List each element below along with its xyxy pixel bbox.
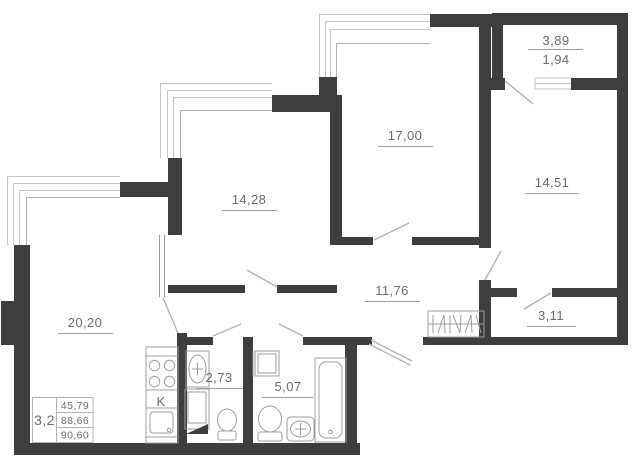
door-balcony: [505, 81, 533, 104]
toilet-icon: [259, 406, 282, 432]
bath-273-area: 2,73: [206, 370, 233, 385]
wall: [277, 285, 337, 293]
wall: [345, 337, 357, 443]
wall: [319, 77, 337, 97]
balcony-area-upper: 3,89: [543, 33, 570, 48]
room-311-area: 3,11: [538, 308, 564, 323]
entry-door: [371, 340, 412, 361]
door-room-2020: [163, 298, 178, 333]
stove-burner-icon: [149, 376, 159, 386]
toilet-tank: [258, 432, 282, 441]
drain-icon: [167, 428, 171, 432]
wall: [479, 280, 491, 345]
washing-machine-drum: [258, 354, 276, 373]
window-icon: [161, 84, 273, 159]
bath-507-area: 5,07: [275, 379, 302, 394]
stove-burner-icon: [149, 360, 159, 370]
floor-plan-canvas: 3,89 1,94 17,00 14,51 14,28 20,20 11,76 …: [0, 0, 640, 466]
wall: [479, 25, 491, 248]
toilet-icon: [218, 409, 237, 431]
summary-table: 3,2 45,79 88,66 90,60: [33, 398, 94, 443]
entry-door: [369, 344, 410, 365]
room-2020-area: 20,20: [68, 315, 103, 330]
wall: [412, 237, 479, 245]
door-room-1428: [247, 270, 277, 287]
wall: [491, 288, 517, 297]
window-icon: [8, 177, 121, 246]
table-row-value: 90,60: [61, 430, 89, 442]
wall: [14, 443, 360, 455]
wall: [243, 337, 253, 443]
table-row-value: 88,66: [61, 415, 89, 427]
window-icon: [14, 184, 121, 246]
kitchen-label: K: [156, 394, 165, 409]
wall: [330, 237, 373, 245]
apartment-type-value: 3,2: [34, 412, 55, 428]
window-icon: [337, 44, 431, 78]
washing-machine-drum: [188, 392, 206, 423]
wall: [552, 288, 617, 297]
wall: [1, 301, 15, 345]
wall: [272, 95, 332, 112]
room-1451-area: 14,51: [535, 175, 570, 190]
door-bath-273: [213, 324, 241, 336]
window-icon: [181, 111, 273, 159]
bathtub-inner: [319, 362, 342, 438]
wall: [617, 13, 628, 345]
door-room-17: [374, 223, 409, 240]
door-room-1451: [485, 251, 501, 280]
wall: [423, 337, 628, 345]
door-room-311: [524, 293, 551, 309]
stove-burner-icon: [164, 376, 174, 386]
room-17-area: 17,00: [388, 128, 423, 143]
kitchen-sink-basin: [150, 412, 173, 433]
wall: [168, 285, 245, 293]
window-icon: [27, 198, 121, 246]
door-bath-507: [279, 324, 303, 336]
wall: [14, 245, 30, 455]
window-icon: [174, 98, 273, 159]
washing-machine-icon: [255, 351, 279, 376]
wall: [330, 95, 342, 245]
wall: [571, 78, 617, 90]
table-row-value: 45,79: [61, 400, 89, 412]
window-icon: [20, 191, 121, 246]
window-icon: [331, 30, 431, 78]
hallway-area: 11,76: [375, 283, 409, 298]
balcony-area-lower: 1,94: [543, 52, 570, 67]
wall: [491, 78, 505, 90]
floor-plan: 3,89 1,94 17,00 14,51 14,28 20,20 11,76 …: [0, 0, 640, 466]
wall: [120, 182, 182, 197]
wall: [187, 337, 213, 345]
room-1428-area: 14,28: [232, 192, 267, 207]
wall: [303, 337, 352, 345]
bathtub-icon: [315, 358, 346, 442]
wall: [430, 14, 494, 27]
window-icon: [168, 91, 273, 159]
fixtures: [146, 311, 484, 443]
wall: [492, 13, 628, 25]
doors: [163, 81, 551, 365]
toilet-tank: [218, 431, 236, 440]
stove-burner-icon: [164, 360, 174, 370]
drain-icon: [329, 430, 333, 434]
